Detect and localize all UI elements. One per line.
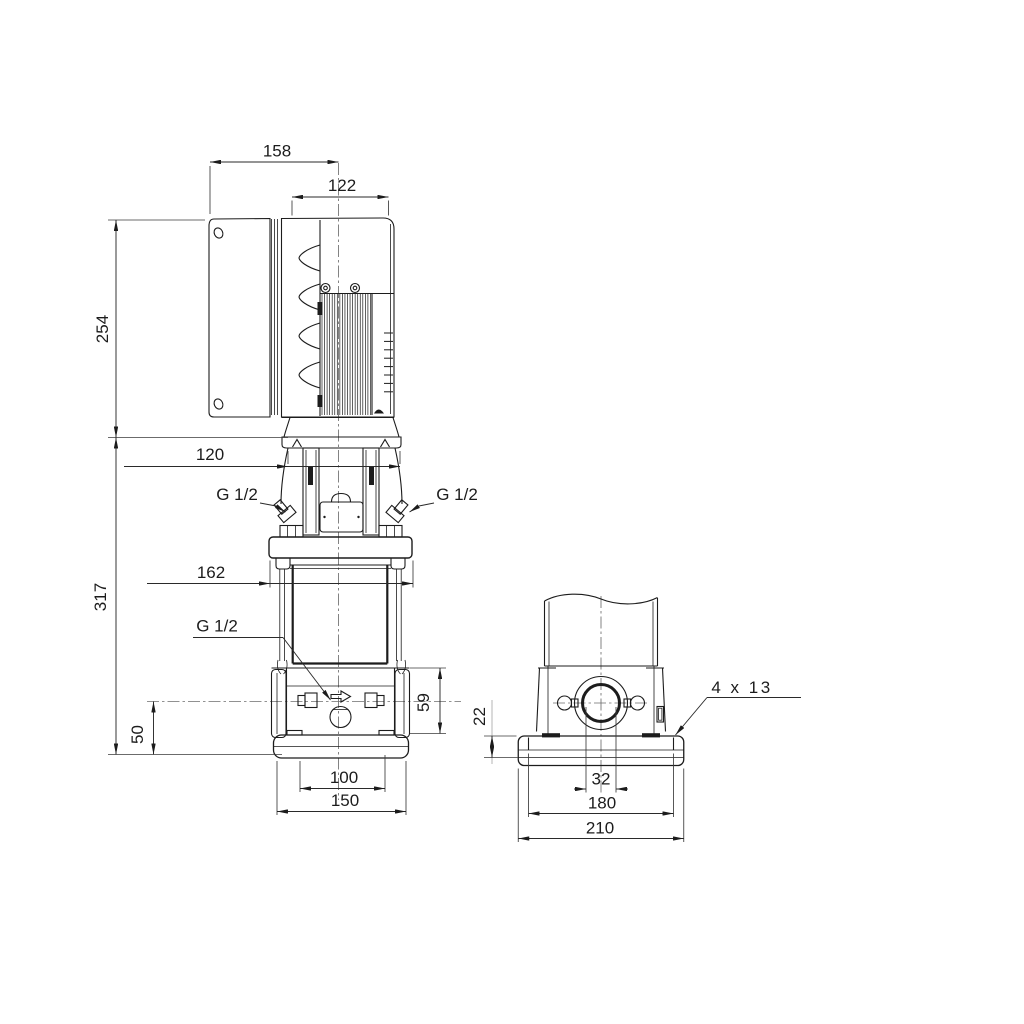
coupling-guard-left: [303, 448, 319, 535]
dim-210-label: 210: [586, 819, 614, 838]
plug-stem: [298, 696, 305, 706]
plug-stem: [377, 696, 384, 706]
dim-180-label: 180: [588, 794, 616, 813]
dim-122-label: 122: [328, 176, 356, 195]
control-box-body: [209, 219, 270, 418]
head-flange: [269, 537, 412, 558]
staybolt-hook: [397, 660, 406, 674]
flow-arrow-icon: [331, 691, 351, 702]
rod-nut: [391, 558, 405, 569]
discharge-port-flange: [395, 670, 410, 738]
dim-32-label: 32: [592, 770, 611, 789]
guard-slot: [369, 466, 374, 485]
pump-dimensional-drawing: 158 122 254 317 120 162 G 1/2: [0, 0, 1024, 1024]
shaft-dome: [332, 494, 351, 503]
gauge-plug-right: [379, 500, 408, 537]
screw-icon: [324, 286, 328, 290]
screw-icon: [351, 284, 360, 293]
leader-g12-drain: [283, 638, 331, 701]
rod-nut: [276, 558, 290, 569]
dimensions-side-view: 158 122 254 317 120 162 G 1/2: [91, 142, 478, 816]
motor-stool: [282, 418, 402, 449]
stool-side: [284, 418, 290, 438]
dim-22-label: 22: [470, 707, 489, 726]
suction-port-flange: [272, 670, 287, 738]
rim-notch: [293, 440, 302, 448]
plug-head: [365, 693, 377, 708]
rim-notch: [381, 440, 390, 448]
head-contour: [281, 448, 288, 504]
foot-pad: [542, 733, 560, 737]
control-box: [209, 219, 278, 418]
plug-label-top-left: G 1/2: [216, 485, 258, 504]
bolt-holes-label: 4 x 13: [711, 678, 772, 697]
dim-50-label: 50: [128, 725, 147, 744]
side-view: 158 122 254 317 120 162 G 1/2: [91, 142, 478, 816]
stool-side: [393, 418, 399, 438]
gauge-plug-left: [274, 500, 303, 537]
pump-foot: [274, 731, 409, 759]
plug-head: [305, 693, 317, 708]
nameplate: [320, 502, 363, 532]
plug-label-drain: G 1/2: [196, 617, 238, 636]
plug-label-top-right: G 1/2: [436, 485, 478, 504]
leader-g12-left: [260, 503, 286, 512]
motor-fins: [322, 294, 370, 415]
mounting-hole: [212, 398, 224, 411]
leader-bolt-holes: [676, 698, 708, 736]
dim-317-label: 317: [91, 583, 110, 611]
drawing-canvas: 158 122 254 317 120 162 G 1/2: [0, 0, 1024, 1024]
dim-150-label: 150: [331, 791, 359, 810]
dim-162-label: 162: [197, 563, 225, 582]
dim-254-label: 254: [93, 315, 112, 343]
coupling-guard-right: [363, 448, 379, 535]
front-view: 22 32 180 210 4 x 13: [470, 594, 801, 842]
leader-g12-right: [410, 503, 435, 512]
side-tab: [657, 707, 664, 723]
screw-icon: [321, 284, 330, 293]
dim-120-label: 120: [196, 445, 224, 464]
side-tab-inner: [659, 708, 662, 720]
grommet-scallops: [299, 245, 323, 407]
mounting-hole: [212, 227, 224, 240]
screw-icon: [353, 286, 357, 290]
drain-hole-mark: [374, 410, 384, 414]
head-contour: [395, 448, 402, 504]
pump-head: [269, 448, 412, 558]
nameplate-rivet: [357, 516, 359, 518]
foot-pad: [379, 731, 394, 736]
support-edge: [537, 668, 540, 732]
vent-slots: [384, 333, 393, 392]
motor: [282, 218, 395, 417]
foot-pad: [287, 731, 302, 736]
foot-pad: [642, 733, 660, 737]
pump-base: [272, 668, 410, 738]
dim-100-label: 100: [330, 768, 358, 787]
guard-slot: [308, 466, 313, 485]
pump-sleeve: [276, 558, 406, 674]
dim-59-label: 59: [414, 693, 433, 712]
nameplate-rivet: [323, 516, 325, 518]
motor-housing: [282, 218, 395, 417]
dim-158-label: 158: [263, 142, 291, 161]
